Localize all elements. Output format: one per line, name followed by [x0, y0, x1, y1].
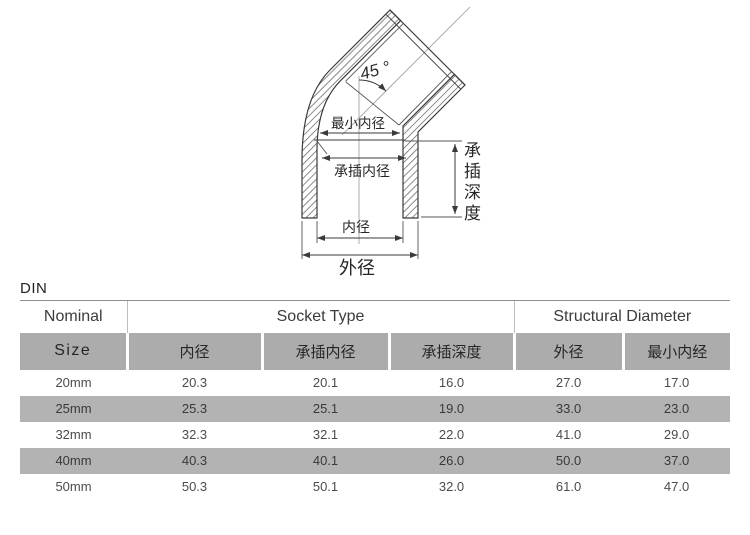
- cell-inner-diameter: 40.3: [127, 448, 262, 474]
- cell-size: 20mm: [20, 370, 127, 396]
- cell-size: 32mm: [20, 422, 127, 448]
- cell-socket-inner-diameter: 50.1: [262, 474, 389, 500]
- column-header-socket-depth: 承插深度: [389, 333, 514, 370]
- cell-socket-inner-diameter: 40.1: [262, 448, 389, 474]
- cell-socket-depth: 16.0: [389, 370, 514, 396]
- cell-inner-diameter: 32.3: [127, 422, 262, 448]
- cell-inner-diameter: 25.3: [127, 396, 262, 422]
- min-inner-diameter-label: 最小内径: [331, 116, 385, 131]
- socket-mouth-inner-edge: [386, 14, 461, 89]
- cell-socket-depth: 32.0: [389, 474, 514, 500]
- cell-min-inner-diameter: 23.0: [623, 396, 730, 422]
- cell-socket-depth: 26.0: [389, 448, 514, 474]
- group-header-nominal: Nominal: [20, 301, 127, 333]
- cell-size: 25mm: [20, 396, 127, 422]
- group-header-structural-diameter: Structural Diameter: [514, 301, 730, 333]
- cell-socket-inner-diameter: 25.1: [262, 396, 389, 422]
- cell-outer-diameter: 33.0: [514, 396, 623, 422]
- cell-size: 50mm: [20, 474, 127, 500]
- column-header-socket-inner-diameter: 承插内径: [262, 333, 389, 370]
- outer-diameter-label: 外径: [339, 258, 375, 278]
- table-row-25mm: 25mm 25.3 25.1 19.0 33.0 23.0: [20, 396, 730, 422]
- elbow-diagram: 45 ° 最小内径 承插内径 内径 外径 承插深度: [0, 0, 750, 278]
- elbow-45-drawing: 45 ° 最小内径 承插内径 内径 外径: [0, 0, 750, 278]
- cell-socket-inner-diameter: 32.1: [262, 422, 389, 448]
- cell-outer-diameter: 41.0: [514, 422, 623, 448]
- column-header-min-inner-diameter: 最小内经: [623, 333, 730, 370]
- table-row-32mm: 32mm 32.3 32.1 22.0 41.0 29.0: [20, 422, 730, 448]
- cell-min-inner-diameter: 47.0: [623, 474, 730, 500]
- standard-label: DIN: [20, 280, 750, 297]
- inner-diameter-label: 内径: [342, 219, 370, 235]
- cell-min-inner-diameter: 17.0: [623, 370, 730, 396]
- cell-min-inner-diameter: 29.0: [623, 422, 730, 448]
- cell-inner-diameter: 20.3: [127, 370, 262, 396]
- socket-mouth-outer-edge: [390, 10, 465, 85]
- column-header-row: Size 内径 承插内径 承插深度 外径 最小内经: [20, 333, 730, 370]
- group-header-socket-type: Socket Type: [127, 301, 514, 333]
- cell-inner-diameter: 50.3: [127, 474, 262, 500]
- socket-taper-line: [317, 141, 327, 154]
- spec-table: Nominal Socket Type Structural Diameter …: [20, 300, 730, 500]
- table-row-20mm: 20mm 20.3 20.1 16.0 27.0 17.0: [20, 370, 730, 396]
- table-row-50mm: 50mm 50.3 50.1 32.0 61.0 47.0: [20, 474, 730, 500]
- table-row-40mm: 40mm 40.3 40.1 26.0 50.0 37.0: [20, 448, 730, 474]
- cell-outer-diameter: 50.0: [514, 448, 623, 474]
- column-header-outer-diameter: 外径: [514, 333, 623, 370]
- socket-depth-label: 承插深度: [462, 141, 479, 225]
- socket-inner-diameter-label: 承插内径: [334, 163, 390, 179]
- cell-socket-inner-diameter: 20.1: [262, 370, 389, 396]
- group-header-row: Nominal Socket Type Structural Diameter: [20, 301, 730, 333]
- right-wall-section: [403, 74, 465, 218]
- cell-outer-diameter: 61.0: [514, 474, 623, 500]
- cell-min-inner-diameter: 37.0: [623, 448, 730, 474]
- cell-outer-diameter: 27.0: [514, 370, 623, 396]
- column-header-inner-diameter: 内径: [127, 333, 262, 370]
- column-header-size: Size: [20, 333, 127, 370]
- cell-socket-depth: 22.0: [389, 422, 514, 448]
- cell-socket-depth: 19.0: [389, 396, 514, 422]
- angle-label: 45 °: [358, 57, 393, 83]
- cell-size: 40mm: [20, 448, 127, 474]
